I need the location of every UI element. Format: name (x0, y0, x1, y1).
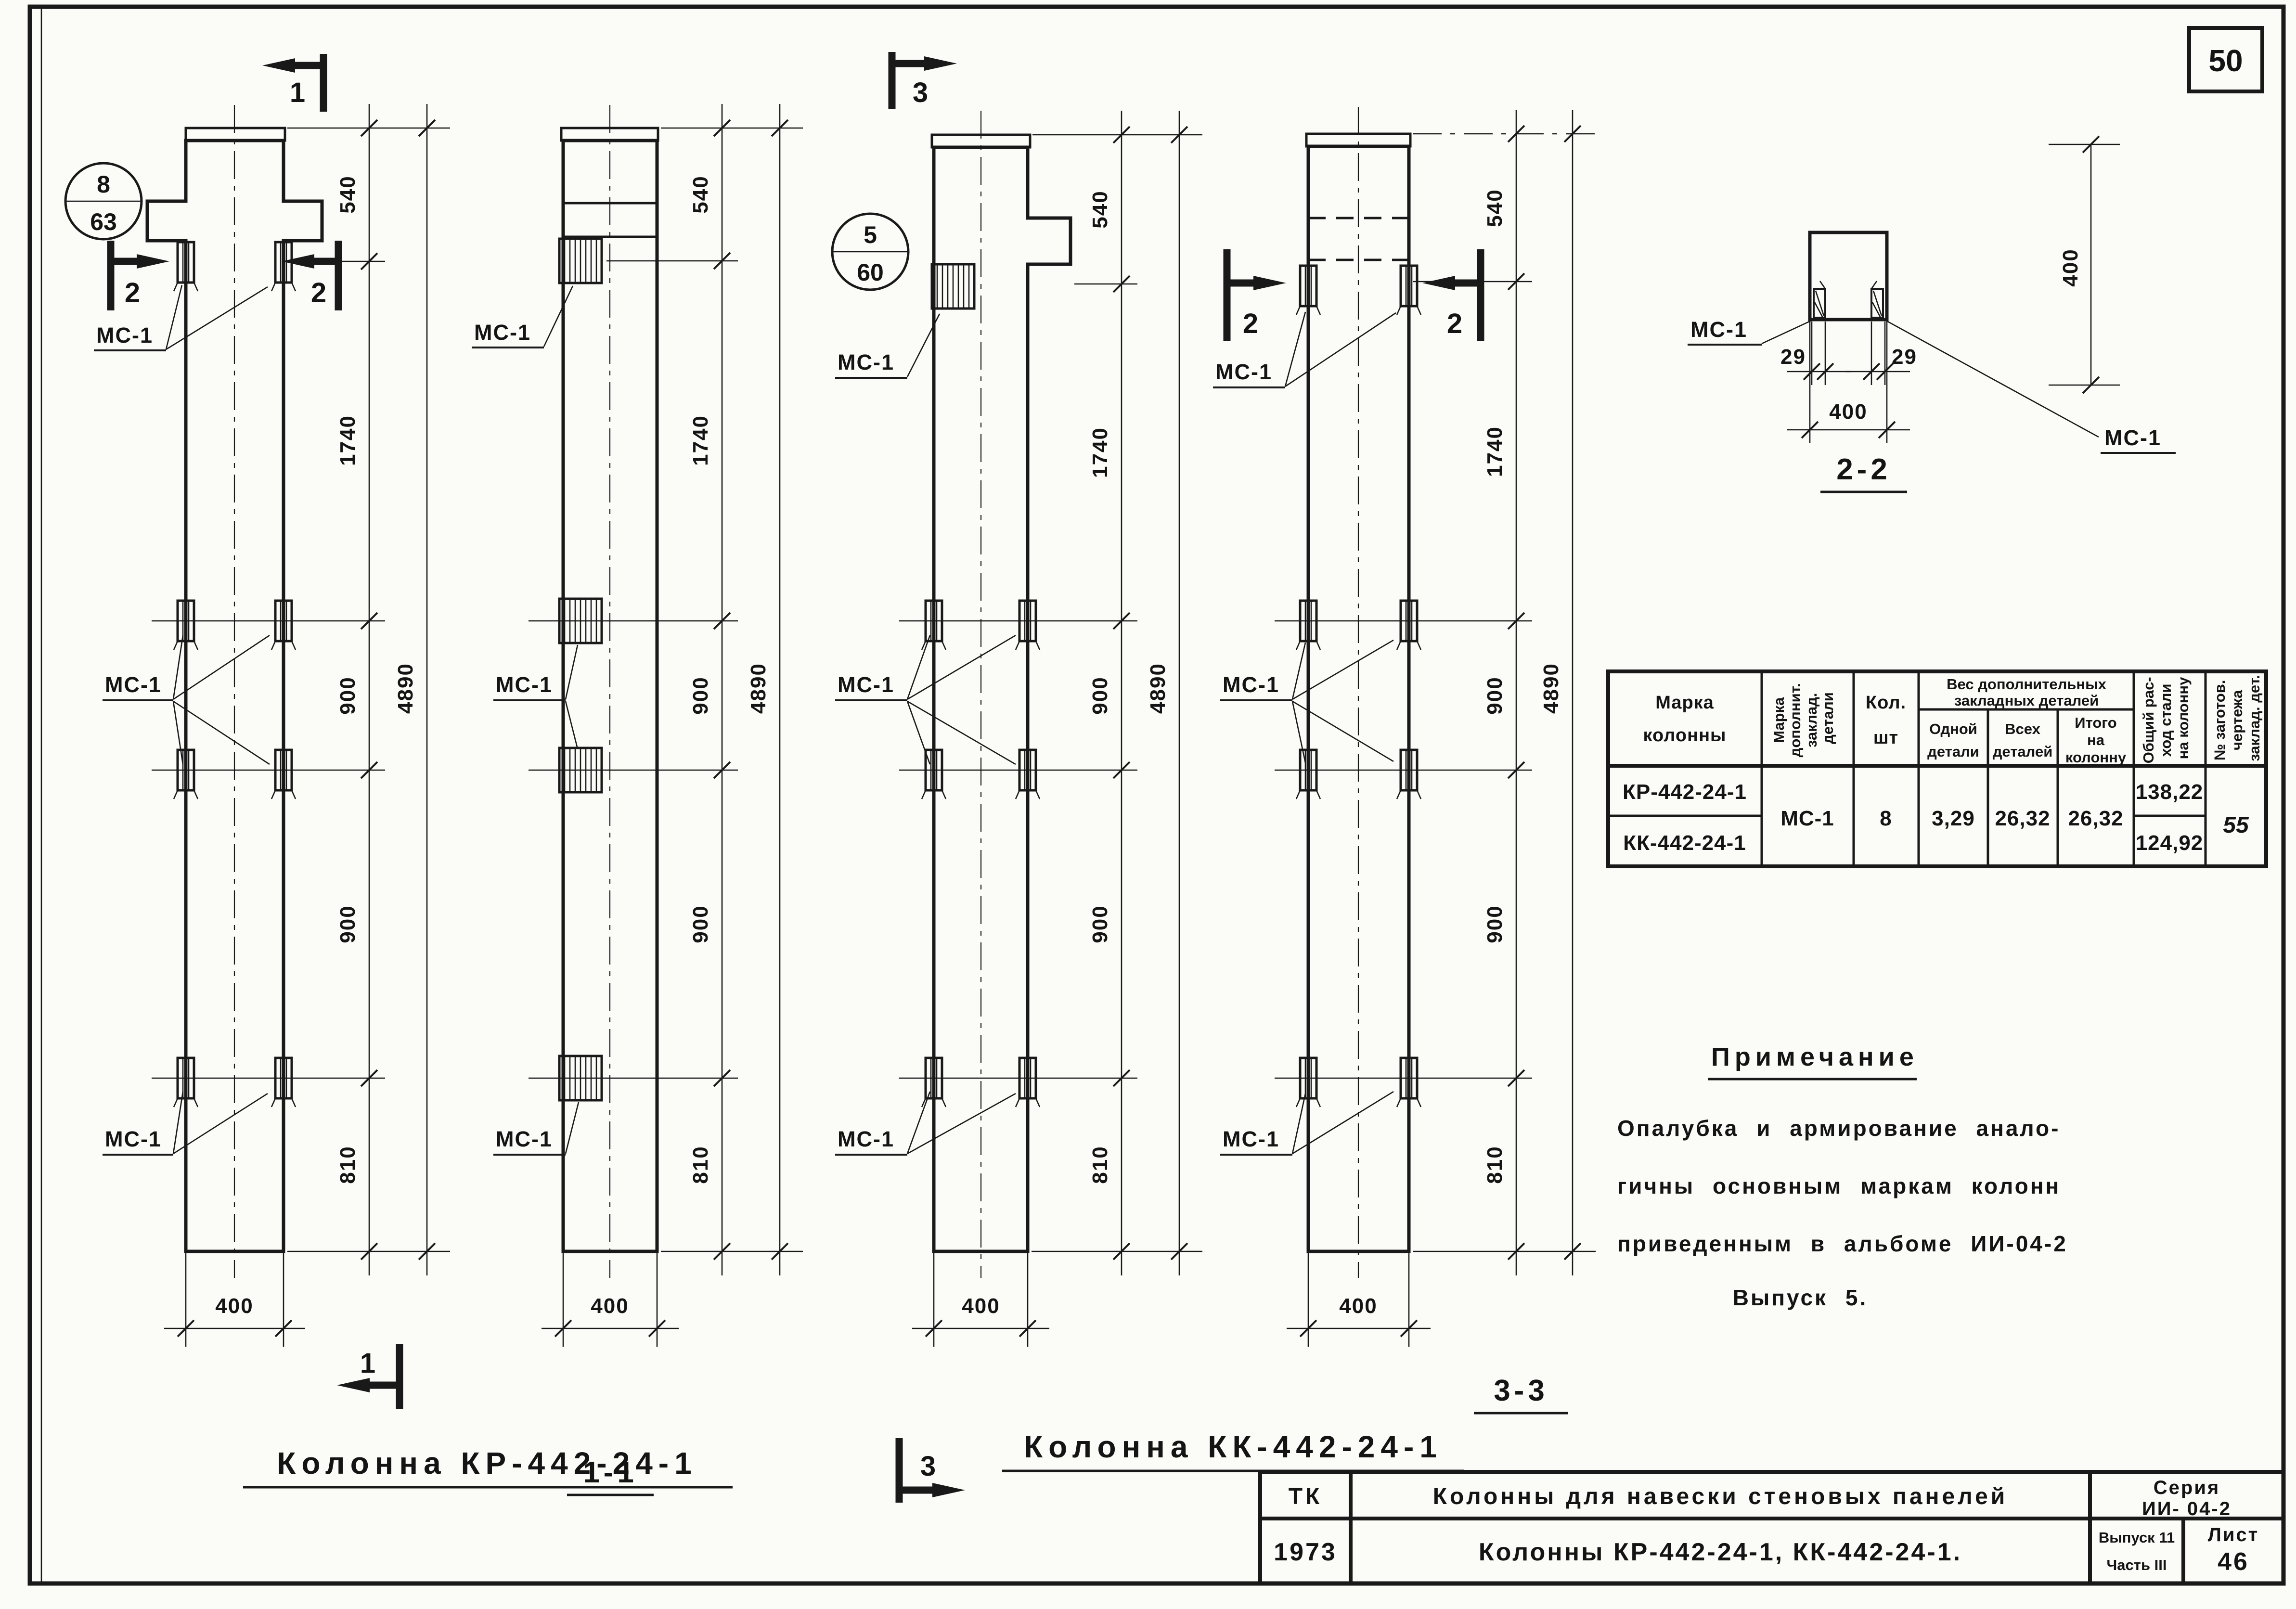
view-title-kr: Колонна КР-442-24-1 (243, 1446, 733, 1487)
section-marker-3-bottom: 3 (899, 1438, 965, 1503)
section-label: 2 (311, 277, 326, 309)
th-weight-group-line2: закладных деталей (1954, 692, 2099, 709)
section-marker-1-bottom: 1 (337, 1344, 400, 1409)
mc1-label: МС-1 (1223, 672, 1279, 697)
section-label: 1 (360, 1348, 375, 1379)
th-one-line1: Одной (1929, 721, 1977, 737)
callout-detail-number: 8 (97, 171, 110, 198)
dim-900: 900 (689, 676, 712, 714)
section-marker-3-top: 3 (892, 52, 957, 109)
tb-issue-line2: Часть III (2107, 1557, 2167, 1573)
view-3-3: 2 2 МС-1 МС-1 МС-1 (1213, 107, 1596, 1413)
dim-900: 900 (1483, 676, 1507, 714)
dim-810: 810 (689, 1146, 712, 1184)
view-title-2-2: 2-2 (1820, 453, 1907, 492)
tb-series-line2: ИИ- 04-2 (2142, 1498, 2232, 1519)
section-marker-2-right: 2 (1422, 249, 1481, 341)
dim-900: 900 (336, 905, 360, 943)
detail-callout: 5 60 (832, 214, 908, 290)
tb-series-line1: Серия (2154, 1477, 2220, 1498)
column-outline (934, 147, 1071, 1251)
section-label: 2 (1243, 308, 1258, 339)
dim-400: 400 (591, 1294, 629, 1318)
view-title-kk: Колонна КК-442-24-1 (1002, 1429, 1464, 1471)
blueprint-canvas: 50 8 63 (0, 0, 2296, 1609)
section-marker-1-top: 1 (262, 54, 323, 112)
mc1-label: МС-1 (838, 1127, 894, 1151)
cell-blank-no: 55 (2223, 812, 2249, 838)
note-title: Примечание (1711, 1043, 1919, 1071)
view-kk-front: 5 60 3 3 МС-1 МС-1 МС (832, 52, 1464, 1503)
dim-4890: 4890 (1146, 663, 1170, 714)
tb-sheet-number: 46 (2218, 1548, 2249, 1576)
mc1-callout-top: МС-1 (835, 314, 940, 378)
section-plate-left (1814, 281, 1825, 318)
th-all-line1: Всех (2005, 721, 2040, 737)
dim-900: 900 (689, 905, 712, 943)
view-title: 2-2 (1836, 453, 1891, 486)
th-qty-line1: Кол. (1866, 693, 1906, 713)
callout-sheet-number: 60 (857, 259, 884, 286)
dim-1740: 1740 (1088, 427, 1112, 478)
mc1-label: МС-1 (838, 672, 894, 697)
mc1-label: МС-1 (1215, 360, 1272, 384)
th-detail-mark: Марка дополнит. заклад. детали (1770, 679, 1836, 758)
drawing-sheet: 50 8 63 (0, 0, 2296, 1609)
mc1-label: МС-1 (474, 320, 531, 345)
dim-900: 900 (336, 676, 360, 714)
dim-540: 540 (689, 175, 712, 213)
section-label: 2 (1447, 308, 1462, 339)
dim-900: 900 (1088, 905, 1112, 943)
mc1-callout-mid: МС-1 (493, 645, 578, 749)
dim-540: 540 (1483, 189, 1507, 227)
view-title: 3-3 (1494, 1374, 1548, 1407)
section-2-2: 29 29 400 400 МС-1 (1688, 136, 2176, 492)
tb-issue-line1: Выпуск 11 (2099, 1529, 2175, 1546)
dimension-lines: 540 1740 900 900 810 4890 400 (1287, 110, 1581, 1347)
section-label: 3 (920, 1451, 936, 1482)
th-one-line2: детали (1927, 743, 1979, 760)
cell-qty: 8 (1880, 807, 1892, 830)
dim-1740: 1740 (336, 415, 360, 466)
note-line-4: Выпуск 5. (1733, 1285, 1868, 1310)
cell-detail-mark: МС-1 (1780, 807, 1834, 830)
page-number: 50 (2208, 43, 2243, 78)
mc1-callout-left: МС-1 (1688, 317, 1816, 345)
cell-steel-kk: 124,92 (2136, 831, 2204, 855)
cell-steel-kr: 138,22 (2136, 780, 2204, 804)
tb-org: ТК (1289, 1484, 1323, 1509)
cell-mark-kr: КР-442-24-1 (1623, 780, 1747, 804)
th-itogo-line1: Итого (2075, 714, 2116, 731)
dimension-lines: 540 1740 900 900 810 4890 400 (542, 104, 788, 1347)
dim-4890: 4890 (747, 663, 770, 714)
view-title: Колонна КК-442-24-1 (1024, 1429, 1443, 1464)
mc1-label: МС-1 (1690, 317, 1747, 342)
mc1-callout-top: МС-1 (94, 285, 268, 350)
detail-callout: 8 63 (65, 163, 142, 239)
tb-content: Колонны КР-442-24-1, КК-442-24-1. (1479, 1538, 1962, 1566)
dim-29: 29 (1892, 345, 1917, 369)
mc1-label: МС-1 (105, 672, 162, 697)
dim-400: 400 (962, 1294, 1000, 1318)
column-cap (186, 128, 285, 141)
dim-1740: 1740 (1483, 426, 1507, 477)
page-number-box: 50 (2189, 28, 2262, 91)
mc1-label: МС-1 (496, 672, 553, 697)
cell-weight-itogo: 26,32 (2068, 807, 2123, 830)
section-marker-2-right: 2 (282, 241, 338, 310)
dim-540: 540 (1088, 190, 1112, 228)
dim-400: 400 (1339, 1294, 1377, 1318)
dim-4890: 4890 (1539, 663, 1563, 714)
note-line-1: Опалубка и армирование анало- (1617, 1116, 2060, 1141)
mc1-label: МС-1 (105, 1127, 162, 1151)
section-label: 2 (125, 277, 140, 309)
dimension-lines: 540 1740 900 900 810 4890 400 (164, 104, 435, 1347)
view-title: 1-1 (583, 1456, 638, 1489)
tb-year: 1973 (1274, 1538, 1337, 1566)
dim-810: 810 (336, 1146, 360, 1184)
mc1-callout-top: МС-1 (472, 286, 573, 348)
note-block: Примечание Опалубка и армирование анало-… (1617, 1043, 2068, 1310)
section-label: 3 (913, 77, 928, 108)
section-label: 1 (290, 77, 305, 108)
cell-weight-one: 3,29 (1932, 807, 1975, 830)
mc1-label: МС-1 (1223, 1127, 1279, 1151)
section-marker-2-left: 2 (1227, 249, 1286, 341)
tb-subject: Колонны для навески стеновых панелей (1433, 1484, 2008, 1509)
mc1-label: МС-1 (496, 1127, 553, 1151)
mc1-callout-bottom: МС-1 (835, 1092, 1016, 1155)
th-itogo-line3: колонну (2065, 749, 2127, 766)
cell-mark-kk: КК-442-24-1 (1623, 831, 1746, 855)
mc1-callout-right: МС-1 (1886, 321, 2176, 453)
note-line-2: гичны основным маркам колонн (1617, 1173, 2061, 1198)
th-steel-total: Общий рас- ход стали на колонну (2140, 673, 2192, 764)
th-blank-drawing: № заготов. чертежа заклад. дет. (2211, 675, 2263, 761)
dim-1740: 1740 (689, 415, 712, 466)
dim-29-right: 29 (1845, 322, 1917, 385)
sheet-frame (30, 7, 2283, 1583)
dim-400: 400 (1829, 400, 1867, 424)
dim-29-left: 29 (1780, 322, 1851, 385)
th-qty-line2: шт (1873, 728, 1898, 748)
th-all-line2: деталей (1993, 743, 2053, 760)
dim-400-height: 400 (2049, 136, 2120, 393)
th-mark-line2: колонны (1643, 725, 1727, 746)
cell-weight-all: 26,32 (1995, 807, 2050, 830)
embedded-plate-side (932, 264, 974, 309)
dim-540: 540 (336, 175, 360, 213)
th-weight-group-line1: Вес дополнительных (1947, 676, 2106, 693)
tb-sheet-label: Лист (2208, 1524, 2259, 1545)
note-line-3: приведенным в альбоме ИИ-04-2 (1617, 1231, 2068, 1256)
dim-4890: 4890 (394, 663, 417, 714)
th-mark-line1: Марка (1655, 693, 1714, 713)
dim-400: 400 (215, 1294, 253, 1318)
dim-400: 400 (2059, 248, 2082, 286)
mc1-label: МС-1 (96, 323, 153, 348)
spec-table: Марка колонны Марка дополнит. заклад. де… (1608, 671, 2266, 866)
mc1-callout-bottom: МС-1 (493, 1102, 579, 1155)
mc1-label: МС-1 (2104, 425, 2161, 450)
dim-810: 810 (1483, 1146, 1507, 1184)
dim-900: 900 (1088, 676, 1112, 714)
th-itogo-line2: на (2087, 732, 2105, 748)
callout-sheet-number: 63 (90, 208, 117, 235)
view-title-3-3: 3-3 (1474, 1374, 1568, 1413)
view-1-1: МС-1 МС-1 МС-1 540 1740 900 900 810 (472, 104, 803, 1495)
mc1-callout-top: МС-1 (1213, 312, 1396, 387)
mc1-callout-mid: МС-1 (835, 635, 1016, 764)
title-block: ТК Колонны для навески стеновых панелей … (1260, 1472, 2283, 1583)
dim-900: 900 (1483, 905, 1507, 943)
dim-810: 810 (1088, 1146, 1112, 1184)
dim-400-width: 400 (1787, 322, 1910, 443)
dim-29: 29 (1780, 345, 1806, 369)
mc1-label: МС-1 (838, 350, 894, 374)
embedded-plate-side (559, 239, 602, 283)
section-marker-2-left: 2 (111, 241, 169, 310)
section-plate-right (1871, 281, 1883, 318)
callout-detail-number: 5 (864, 221, 877, 248)
